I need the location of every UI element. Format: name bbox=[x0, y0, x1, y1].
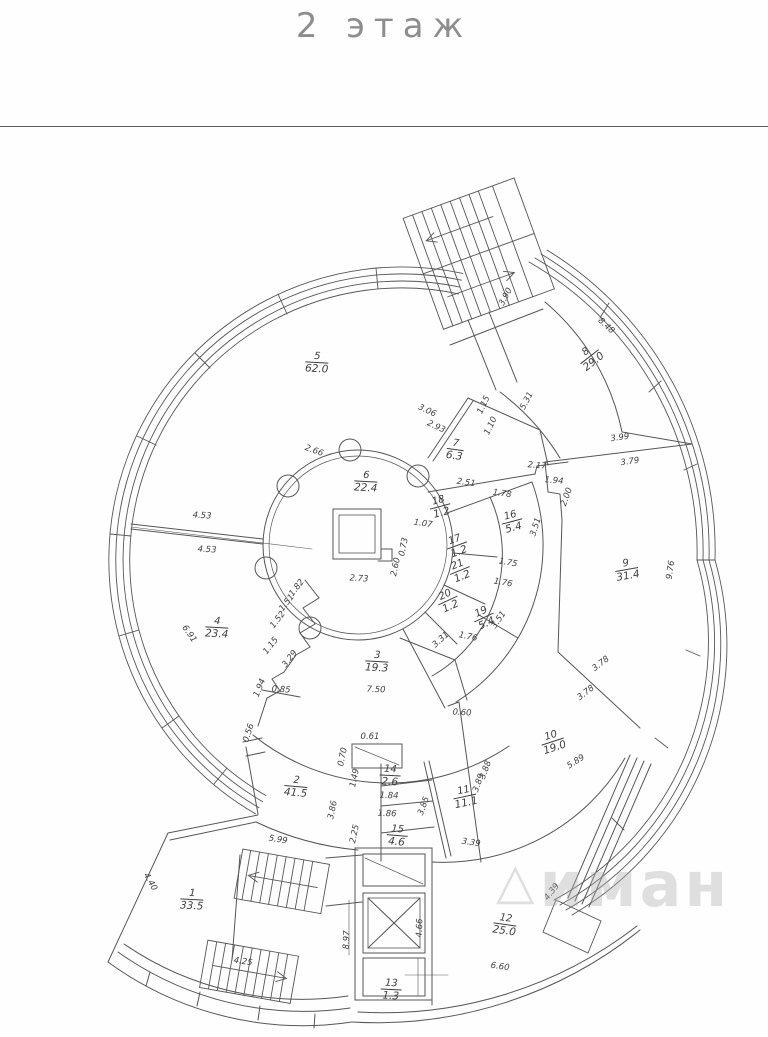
watermark-text: иман bbox=[539, 848, 730, 921]
stair-arrow-down-icon bbox=[446, 268, 516, 302]
elevator-block bbox=[349, 848, 448, 1000]
stairs-bottom-lower bbox=[200, 940, 299, 1003]
stairs-top bbox=[403, 178, 554, 329]
inner-circle-room6 bbox=[255, 439, 453, 640]
floor-plan-page: 2 этаж bbox=[0, 0, 768, 1037]
central-shaft bbox=[333, 509, 392, 561]
stair-arrow-up-icon bbox=[425, 212, 495, 246]
stairs-bottom-upper bbox=[234, 849, 329, 914]
watermark: △иман bbox=[496, 848, 768, 921]
wing-bottom-left bbox=[108, 815, 358, 1028]
watermark-logo-icon: △ bbox=[496, 852, 537, 910]
elevator-x-icon bbox=[368, 898, 420, 948]
outer-wall-band-left bbox=[109, 267, 463, 814]
